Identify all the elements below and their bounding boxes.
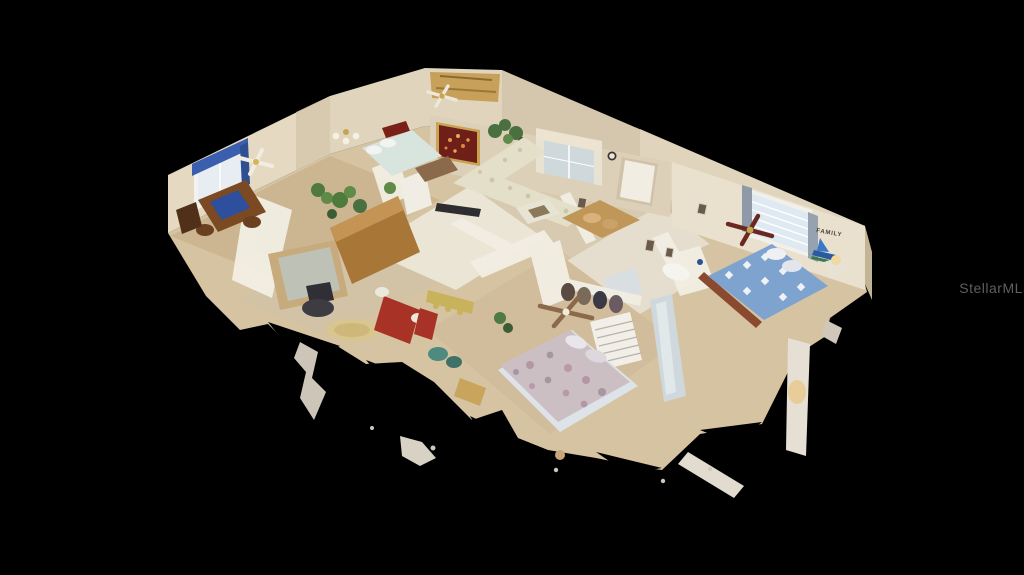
fragment-dot bbox=[708, 467, 712, 471]
frame-icon bbox=[665, 248, 673, 258]
screenshot-canvas: FAMILY bbox=[0, 0, 1024, 575]
living-drape-right bbox=[594, 150, 602, 186]
office-chair bbox=[302, 299, 334, 317]
frame-icon bbox=[697, 203, 707, 214]
teal-wicker bbox=[428, 347, 448, 361]
alcove-pillow bbox=[602, 219, 618, 229]
front-door bbox=[616, 157, 658, 206]
guest-pillow bbox=[766, 248, 786, 260]
den-chair bbox=[243, 216, 261, 228]
frame-icon bbox=[645, 239, 655, 251]
towel bbox=[697, 259, 703, 265]
nook-chair bbox=[375, 287, 389, 297]
nightstand-lamp-glow bbox=[831, 255, 841, 265]
fragment-lamp-glow bbox=[788, 380, 806, 404]
fragment-dot bbox=[370, 426, 374, 430]
fragment-dot bbox=[661, 479, 665, 483]
wall-clock-icon bbox=[608, 152, 617, 161]
master-plant bbox=[494, 312, 506, 324]
alcove-pillow bbox=[583, 213, 601, 223]
back-bed-pillow bbox=[366, 146, 382, 155]
guest-pillow bbox=[782, 260, 802, 272]
master-plant bbox=[503, 323, 513, 333]
stellar-mls-watermark: StellarMLS bbox=[959, 280, 1024, 296]
dollhouse-scene: FAMILY bbox=[0, 0, 1024, 575]
fragment-dot bbox=[431, 446, 436, 451]
warm-lamp-blob bbox=[555, 450, 565, 460]
back-bed-pillow bbox=[380, 139, 396, 148]
fragment-dot bbox=[554, 468, 558, 472]
teal-wicker bbox=[446, 356, 462, 368]
den-corner-plant bbox=[321, 192, 333, 204]
